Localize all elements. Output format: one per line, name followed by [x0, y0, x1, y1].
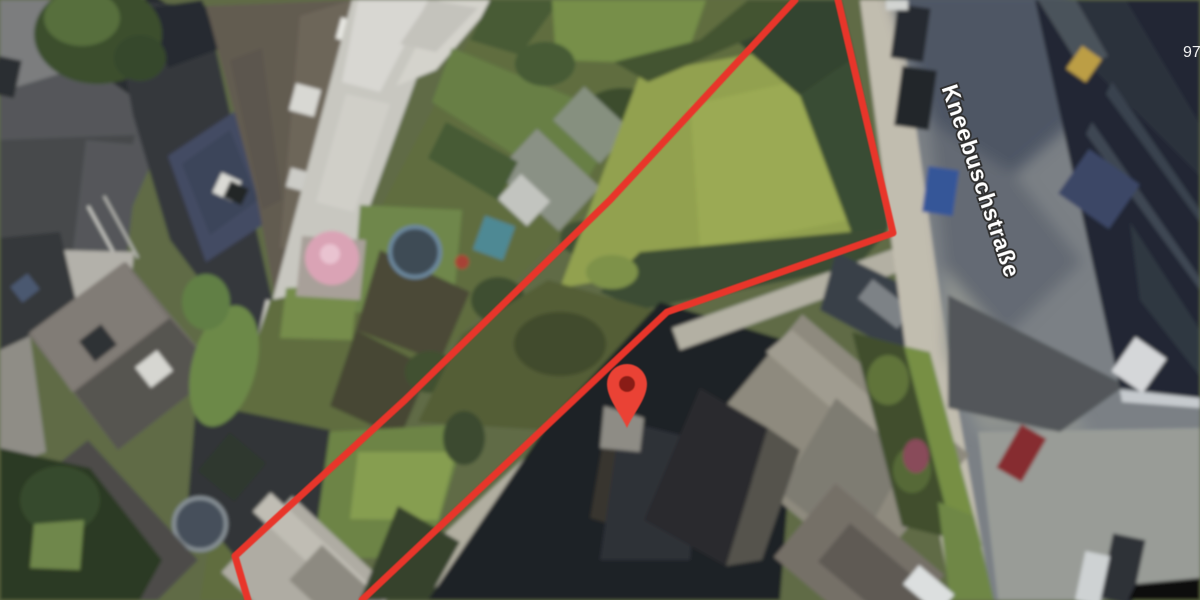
svg-text:97: 97: [1183, 44, 1200, 61]
